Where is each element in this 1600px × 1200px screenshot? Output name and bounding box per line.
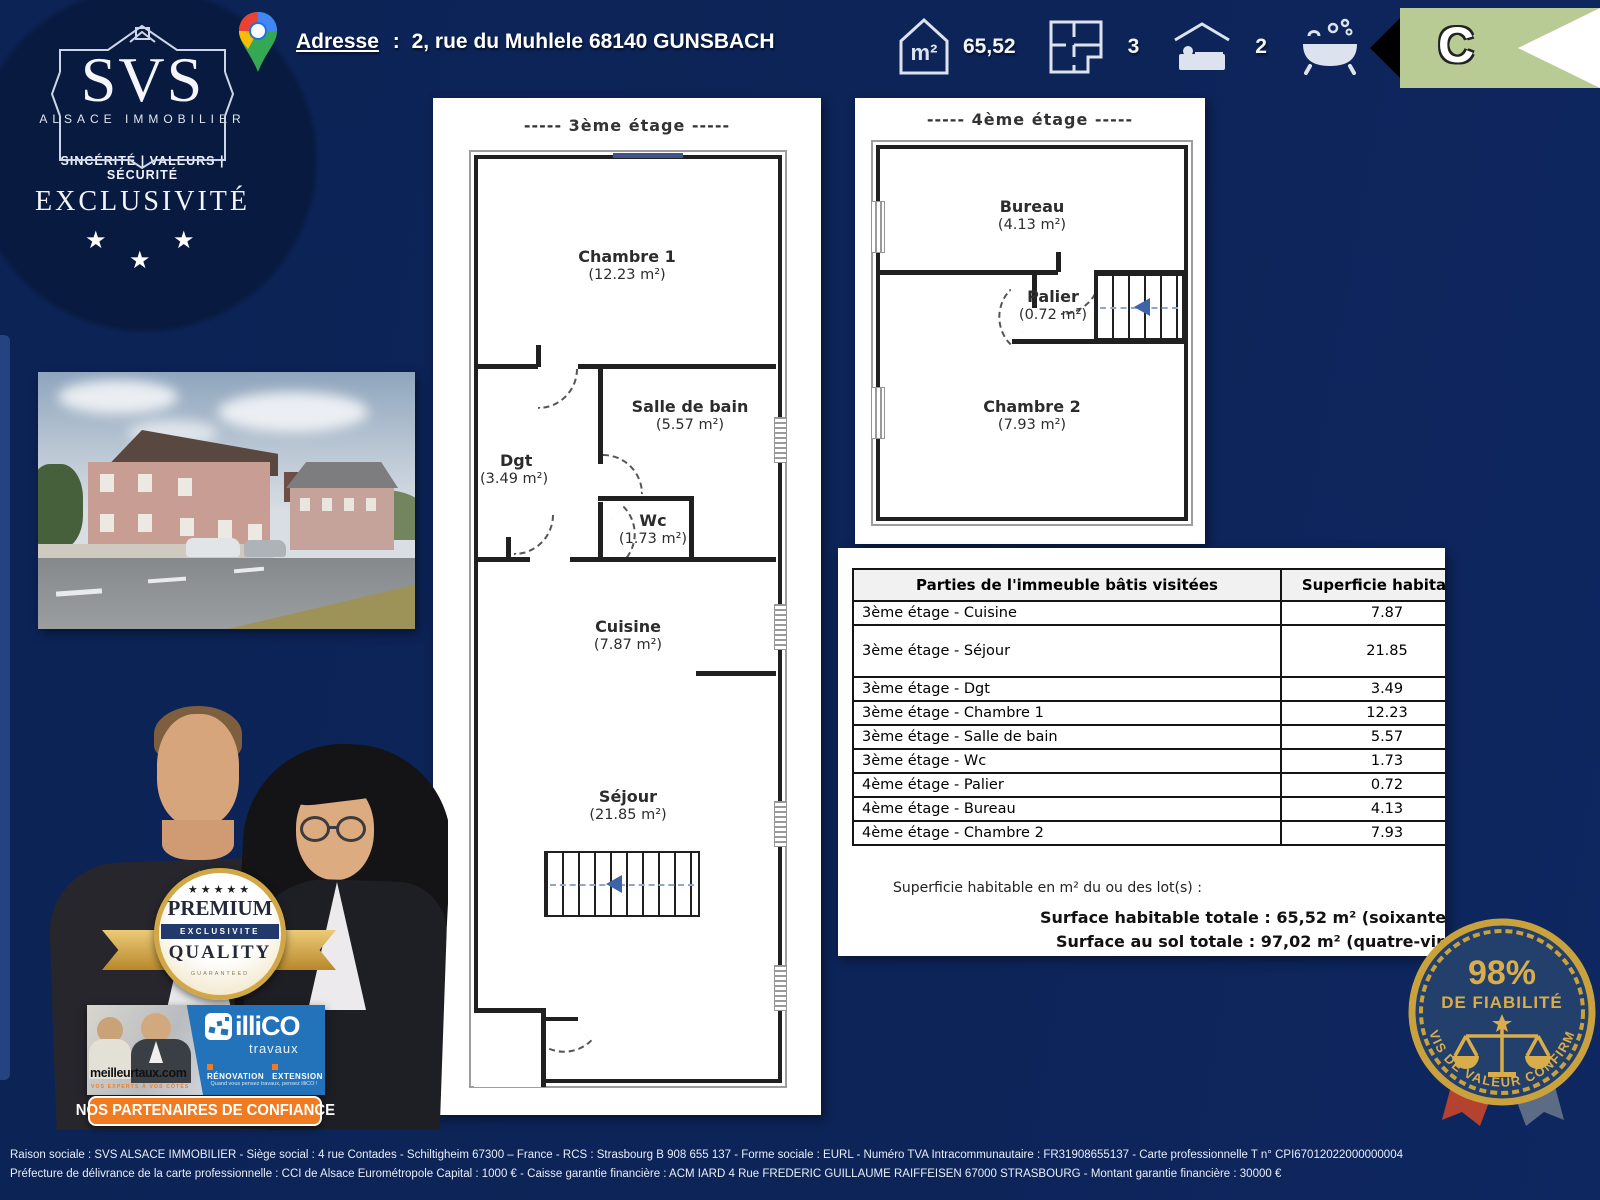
fiability-title: DE FIABILITÉ — [1441, 993, 1563, 1012]
table-row: 3ème étage - Chambre 112.23 — [853, 701, 1445, 725]
meilleurtaux-photo — [87, 1005, 203, 1095]
meilleurtaux-logo: meilleurtaux.com — [90, 1066, 186, 1080]
address-separator: : — [393, 30, 400, 53]
door-arc — [538, 369, 578, 409]
area-value: 65,52 — [963, 35, 1016, 59]
room-label-wc: Wc (1.73 m²) — [608, 511, 698, 547]
premium-quality: QUALITY — [159, 942, 281, 964]
room-label-palier: Palier (0.72 m²) — [1008, 287, 1098, 323]
fiability-badge: 98% DE FIABILITÉ AVIS DE VALEUR CONFIRMÉ — [1400, 910, 1600, 1130]
illico-sub: travaux — [249, 1041, 299, 1056]
floorplan-3-drawing: Chambre 1 (12.23 m²) Dgt (3.49 m²) Salle… — [474, 155, 782, 1083]
bedrooms-icon — [1171, 18, 1233, 76]
total-habitable: Surface habitable totale : 65,52 m² (soi… — [1040, 908, 1445, 927]
stairs-arrow-icon — [1134, 298, 1150, 316]
stairs-arrow-icon — [606, 875, 622, 893]
fiability-percent: 98% — [1468, 954, 1536, 992]
footer-line-2: Préfecture de délivrance de la carte pro… — [10, 1165, 1600, 1184]
agency-logo: SVS ALSACE IMMOBILIER SINCÉRITÉ | VALEUR… — [30, 20, 255, 280]
illico-item-extension: EXTENSION — [272, 1063, 323, 1081]
total-sol: Surface au sol totale : 97,02 m² (quatre… — [1056, 932, 1445, 951]
stairs — [1094, 274, 1184, 340]
energy-class-badge: C — [1400, 8, 1600, 88]
room-label-cuisine: Cuisine (7.87 m²) — [518, 617, 738, 653]
stairs — [544, 851, 700, 917]
premium-guaranteed: GUARANTEED — [159, 971, 281, 977]
meilleurtaux-tagline: VOS EXPERTS À VOS CÔTÉS — [91, 1084, 189, 1090]
star-icon: ★ — [129, 246, 151, 275]
table-row: 4ème étage - Chambre 27.93 — [853, 821, 1445, 845]
illico-caption: Quand vous pensez travaux, pensez illiCO… — [205, 1081, 323, 1087]
stairs-direction-line — [550, 884, 694, 886]
bullet-square-icon — [272, 1064, 278, 1070]
bedrooms-value: 2 — [1255, 35, 1267, 59]
window-marker — [774, 604, 787, 650]
window-marker — [774, 417, 787, 463]
star-icon: ★ — [85, 226, 107, 255]
footer: Raison sociale : SVS ALSACE IMMOBILIER -… — [10, 1146, 1600, 1184]
logo-banner: EXCLUSIVITÉ — [30, 186, 255, 218]
table-header-surface: Superficie habitable — [1281, 569, 1445, 601]
room-label-sdb: Salle de bain (5.57 m²) — [606, 397, 774, 433]
premium-circle: ★★★★★ PREMIUM EXCLUSIVITE QUALITY GUARAN… — [154, 868, 286, 1000]
window-marker — [774, 801, 787, 847]
illico-item-renovation: RÉNOVATION — [207, 1063, 264, 1081]
partners-banner-pill: NOS PARTENAIRES DE CONFIANCE — [88, 1096, 322, 1126]
svg-text:m²: m² — [911, 40, 938, 65]
door-arc — [514, 515, 554, 555]
table-row: 3ème étage - Salle de bain5.57 — [853, 725, 1445, 749]
property-photo — [38, 372, 415, 629]
address-line: Adresse : 2, rue du Muhlele 68140 GUNSBA… — [296, 30, 775, 54]
stats-bar: m² 65,52 3 2 — [893, 12, 1397, 82]
room-label-dgt: Dgt (3.49 m²) — [480, 451, 595, 487]
energy-notch — [1518, 8, 1600, 88]
energy-class-letter: C — [1438, 16, 1474, 74]
floor3-title: ----- 3ème étage ----- — [433, 116, 821, 135]
door-arc — [603, 454, 643, 494]
table-header-parts: Parties de l'immeuble bâtis visitées — [853, 569, 1281, 601]
table-header-row: Parties de l'immeuble bâtis visitées Sup… — [853, 569, 1445, 601]
logo-house-icon — [30, 20, 255, 170]
glasses — [336, 816, 366, 842]
illico-logo: illiCO — [235, 1011, 300, 1042]
floor4-card: ----- 4ème étage ----- Bureau (4.13 — [855, 98, 1205, 544]
surface-note: Superficie habitable en m² du ou des lot… — [893, 880, 1202, 896]
flyer-page: SVS ALSACE IMMOBILIER SINCÉRITÉ | VALEUR… — [0, 0, 1600, 1200]
bullet-square-icon — [207, 1064, 213, 1070]
area-icon: m² — [893, 15, 955, 79]
energy-arrow-icon — [1370, 18, 1400, 78]
table-row: 3ème étage - Cuisine7.87 — [853, 601, 1445, 625]
table-row: 4ème étage - Palier0.72 — [853, 773, 1445, 797]
address-value: 2, rue du Muhlele 68140 GUNSBACH — [412, 30, 775, 53]
footer-line-1: Raison sociale : SVS ALSACE IMMOBILIER -… — [10, 1146, 1600, 1165]
rooms-value: 3 — [1128, 35, 1140, 59]
glasses — [300, 816, 330, 842]
floorplan-4-drawing: Bureau (4.13 m²) Palier (0.72 m²) Chambr… — [876, 145, 1188, 521]
building2 — [290, 484, 394, 550]
premium-title: PREMIUM — [159, 896, 281, 921]
maps-pin-icon — [237, 10, 279, 74]
table-row: 3ème étage - Séjour21.85 — [853, 625, 1445, 677]
room-label-sejour: Séjour (21.85 m²) — [518, 787, 738, 823]
star-icon: ★ — [173, 226, 195, 255]
car — [244, 540, 286, 557]
room-label-chambre2: Chambre 2 (7.93 m²) — [880, 397, 1184, 433]
address-label: Adresse — [296, 30, 379, 53]
surface-table-card: Parties de l'immeuble bâtis visitées Sup… — [838, 548, 1445, 956]
room-label-bureau: Bureau (4.13 m²) — [880, 197, 1184, 233]
table-row: 4ème étage - Bureau4.13 — [853, 797, 1445, 821]
car — [186, 538, 240, 557]
floor3-card: ----- 3ème étage ----- — [433, 98, 821, 1115]
logo-stars: ★ ★ ★ — [30, 224, 255, 280]
table-row: 3ème étage - Dgt3.49 — [853, 677, 1445, 701]
illico-icon — [205, 1013, 232, 1040]
room-label-chambre1: Chambre 1 (12.23 m²) — [478, 247, 776, 283]
surface-table: Parties de l'immeuble bâtis visitées Sup… — [852, 568, 1445, 846]
bathrooms-icon — [1297, 16, 1363, 78]
floor4-title: ----- 4ème étage ----- — [855, 110, 1205, 129]
premium-band: EXCLUSIVITE — [161, 924, 279, 939]
table-row: 3ème étage - Wc1.73 — [853, 749, 1445, 773]
window-marker — [774, 965, 787, 1011]
partner-banner: meilleurtaux.com VOS EXPERTS À VOS CÔTÉS… — [87, 1005, 325, 1095]
left-accent-strip — [0, 335, 10, 1080]
premium-stars: ★★★★★ — [159, 883, 281, 896]
floorplan-icon — [1046, 17, 1106, 77]
